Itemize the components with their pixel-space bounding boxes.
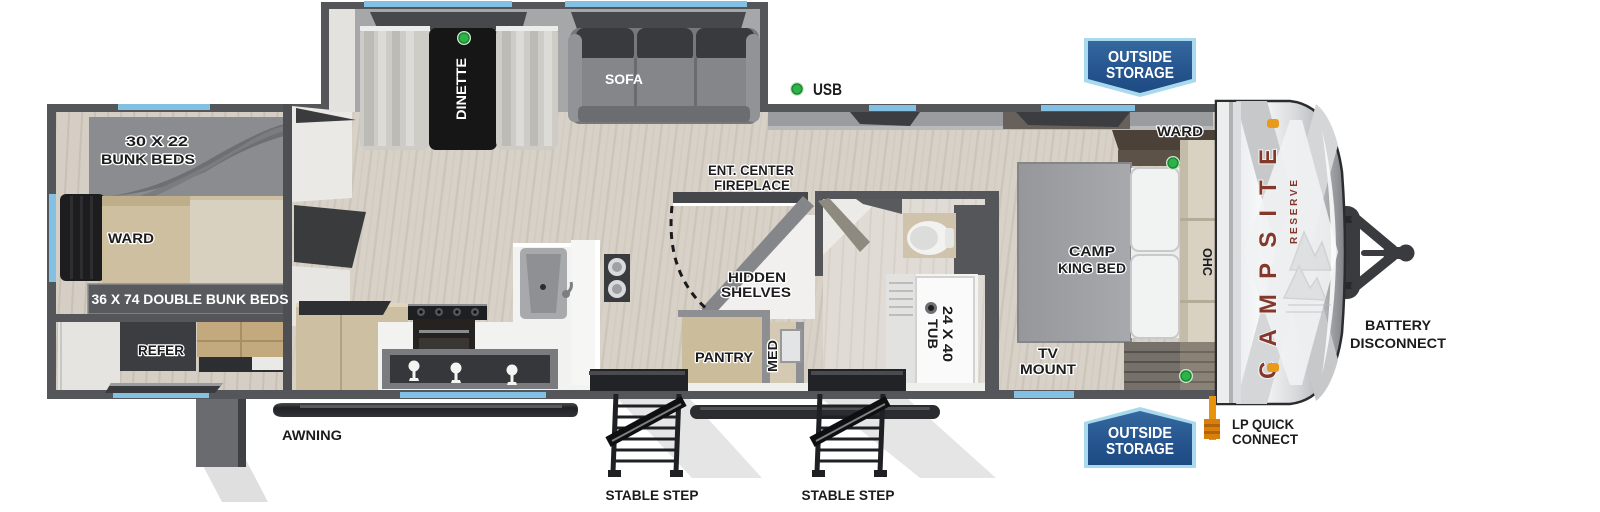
svg-text:HIDDEN: HIDDEN xyxy=(728,269,786,285)
svg-text:BUNK BEDS: BUNK BEDS xyxy=(101,151,195,167)
svg-text:36 X 74 DOUBLE BUNK BEDS: 36 X 74 DOUBLE BUNK BEDS xyxy=(92,291,289,307)
svg-text:CAMPSITE: CAMPSITE xyxy=(1255,149,1282,379)
svg-text:STORAGE: STORAGE xyxy=(1106,441,1174,458)
svg-text:PANTRY: PANTRY xyxy=(695,349,754,365)
svg-text:24 X 40: 24 X 40 xyxy=(940,306,956,362)
svg-text:REFER: REFER xyxy=(138,342,184,358)
svg-text:USB: USB xyxy=(813,80,842,99)
svg-text:SHELVES: SHELVES xyxy=(721,284,791,300)
svg-text:CAMP: CAMP xyxy=(1069,243,1115,259)
svg-text:WARD: WARD xyxy=(1157,123,1203,139)
svg-text:TV: TV xyxy=(1038,345,1059,361)
svg-text:CONNECT: CONNECT xyxy=(1232,431,1298,447)
svg-text:KING BED: KING BED xyxy=(1058,260,1126,276)
svg-text:WARD: WARD xyxy=(108,230,154,246)
svg-text:SOFA: SOFA xyxy=(605,71,643,87)
svg-text:DINETTE: DINETTE xyxy=(453,58,469,120)
svg-text:OHC: OHC xyxy=(1200,248,1215,277)
svg-text:30 X 22: 30 X 22 xyxy=(126,133,188,149)
svg-text:LP QUICK: LP QUICK xyxy=(1232,416,1294,432)
svg-text:MED: MED xyxy=(765,340,780,372)
svg-text:STABLE STEP: STABLE STEP xyxy=(802,487,895,503)
svg-text:OUTSIDE: OUTSIDE xyxy=(1108,49,1172,66)
svg-text:AWNING: AWNING xyxy=(282,427,342,443)
svg-text:BATTERY: BATTERY xyxy=(1365,317,1432,333)
svg-text:STORAGE: STORAGE xyxy=(1106,65,1174,82)
svg-text:MOUNT: MOUNT xyxy=(1020,361,1076,377)
svg-text:DISCONNECT: DISCONNECT xyxy=(1350,335,1446,351)
svg-text:OUTSIDE: OUTSIDE xyxy=(1108,425,1172,442)
svg-text:STABLE STEP: STABLE STEP xyxy=(606,487,699,503)
svg-text:TUB: TUB xyxy=(925,319,941,349)
svg-text:FIREPLACE: FIREPLACE xyxy=(714,177,790,193)
svg-text:ENT. CENTER: ENT. CENTER xyxy=(708,162,794,178)
